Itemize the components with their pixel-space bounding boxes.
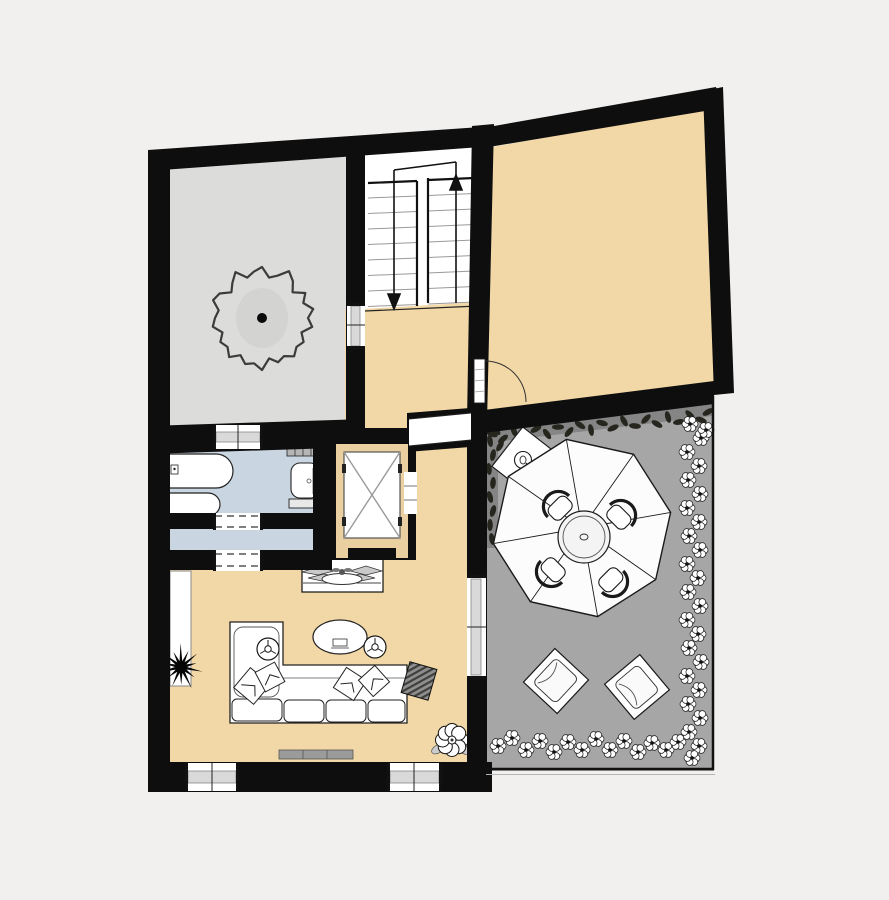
vestibule [160,526,320,554]
window-bottom-right [387,763,442,791]
window-bathroom [213,425,263,449]
dashed-opening-living [213,550,263,571]
dashed-opening-bathroom [213,513,263,530]
elevator-door [404,472,417,514]
elevator [336,444,417,558]
window-living-terrace [467,575,486,679]
shower-tub-icon [168,493,220,516]
side-table-icon [257,638,279,660]
living-radiator-icon [279,750,353,759]
terrace-table-icon [558,511,610,563]
coffee-table-icon [313,620,367,654]
room-top-right [481,109,716,412]
window-bottom-left [185,763,239,791]
side-table-icon [364,636,386,658]
floor-plan-drawing [0,0,889,900]
floor-plan-page [0,0,889,900]
wide-opening-hallway [409,413,471,446]
window-hall [347,303,365,349]
